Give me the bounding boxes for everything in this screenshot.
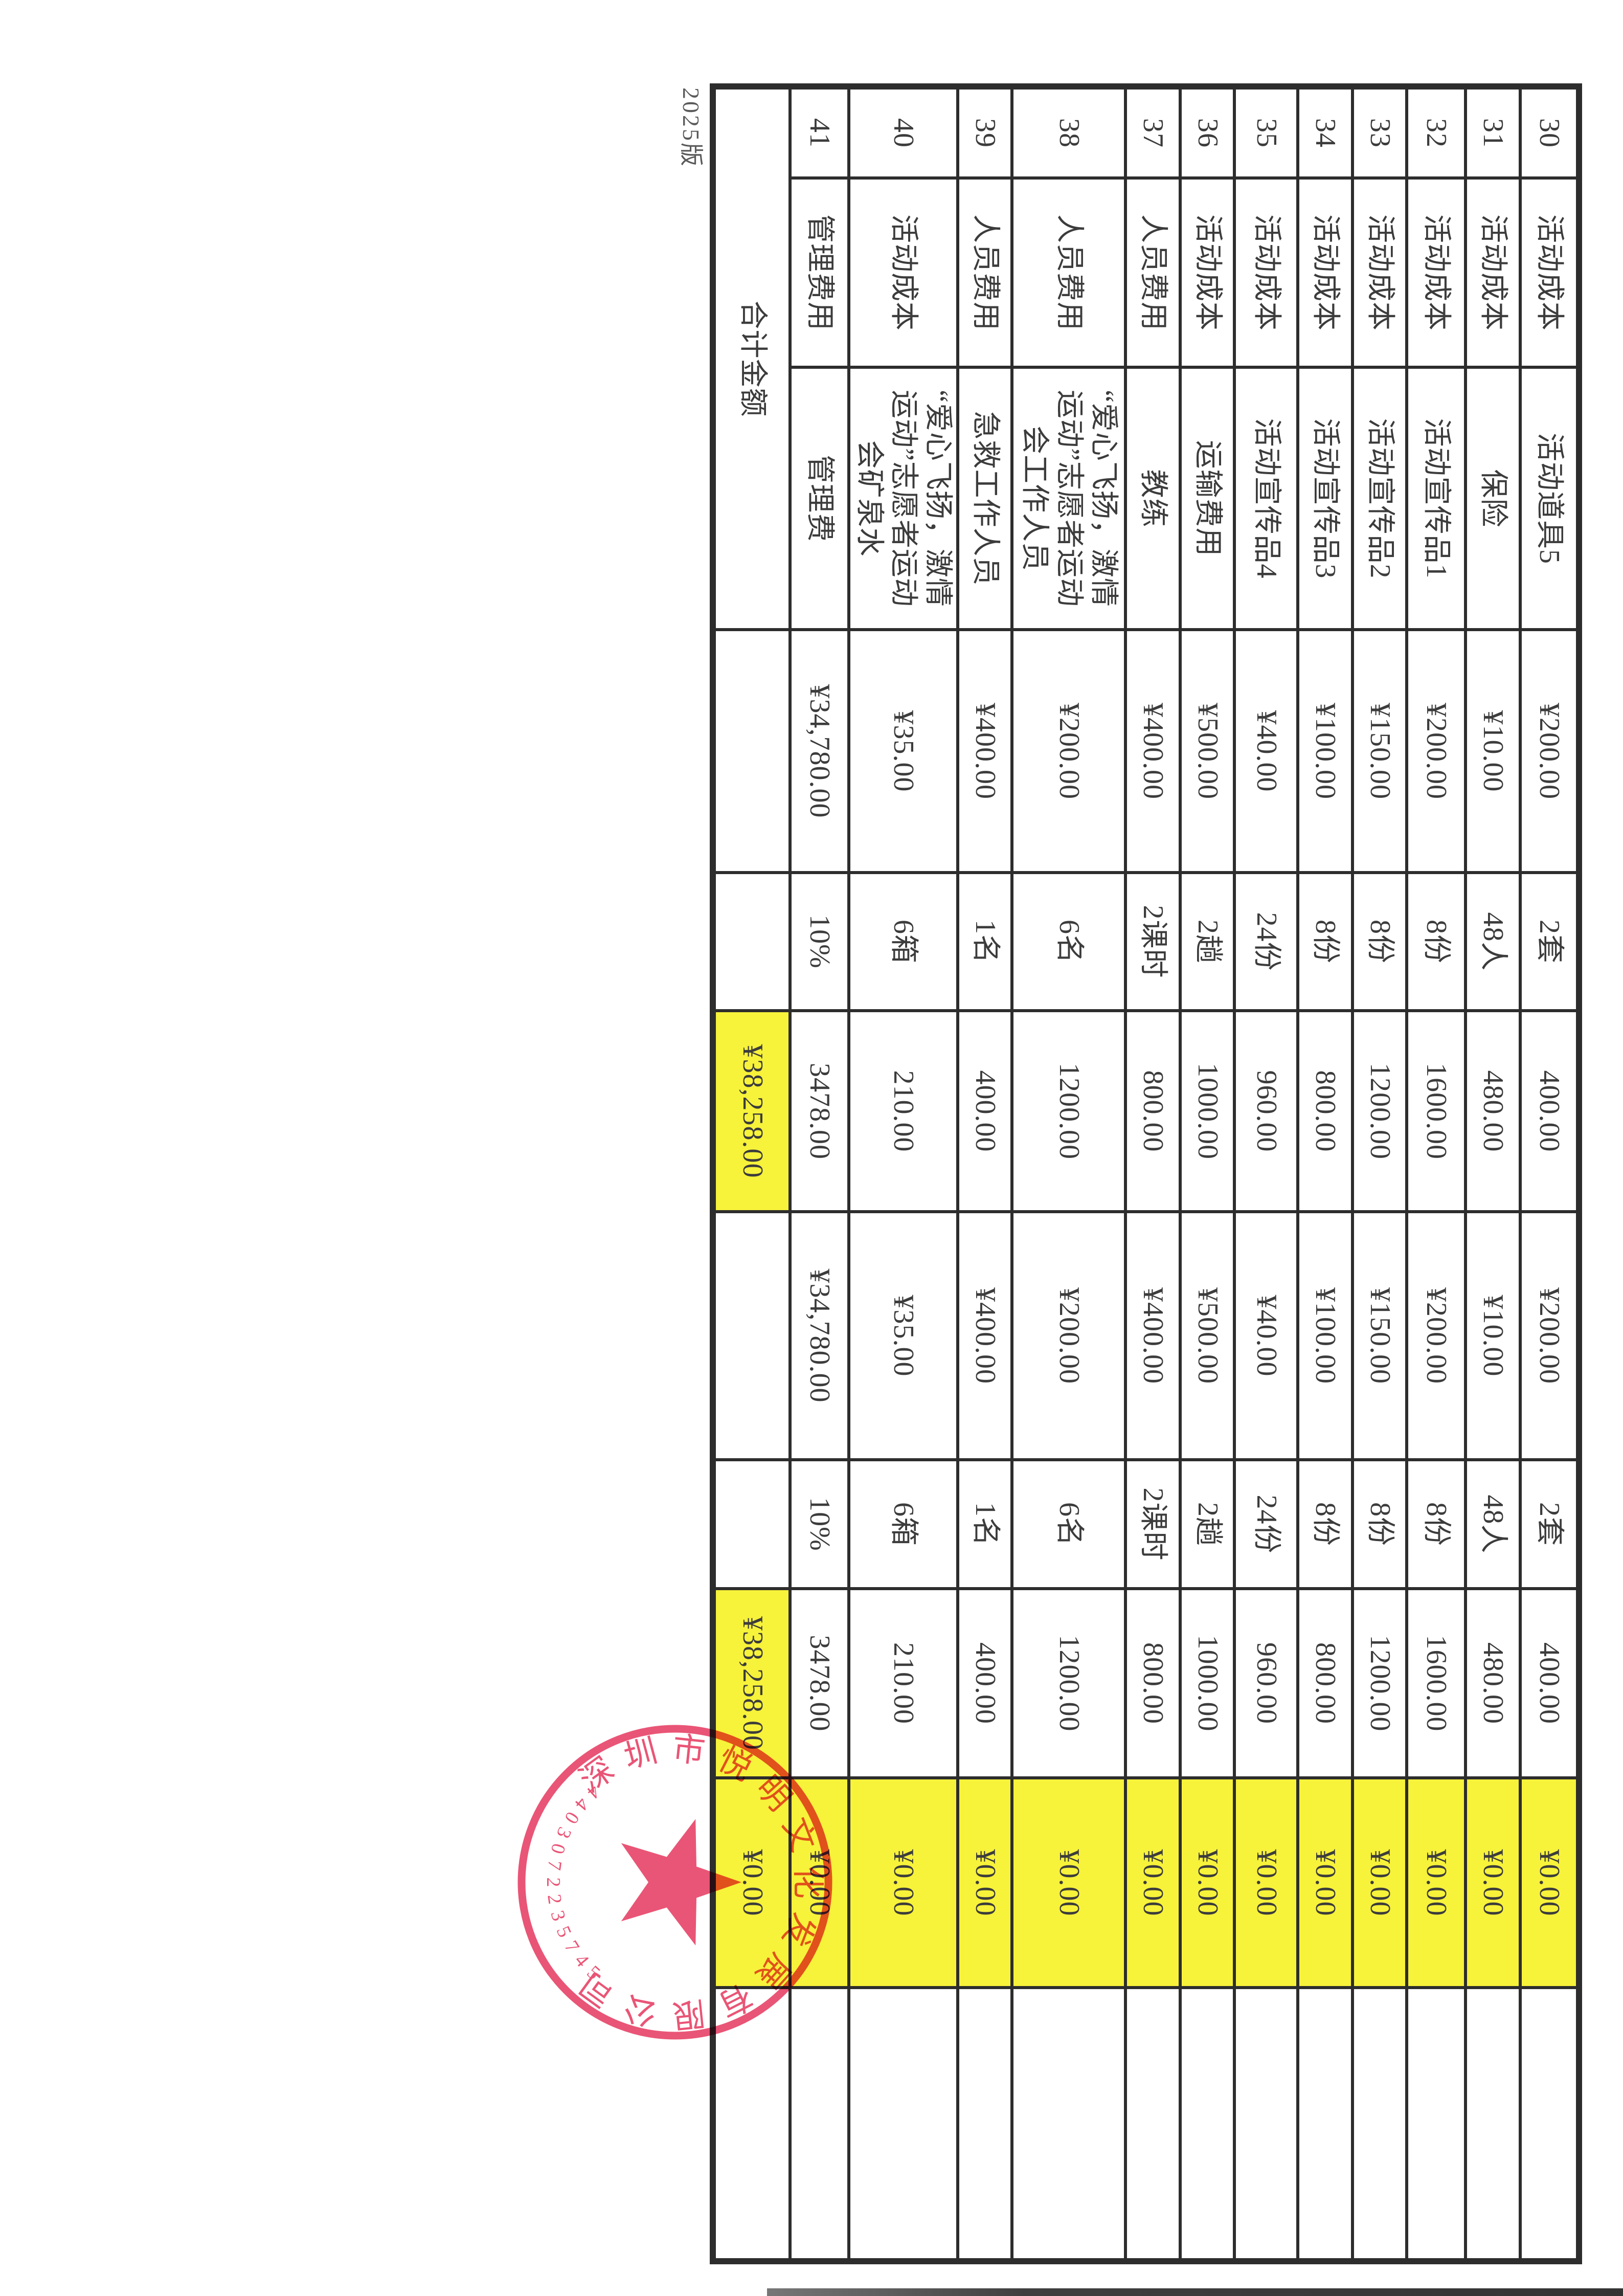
cell-budget_amount: 210.00 xyxy=(849,1011,958,1212)
cell-item: “爱心飞扬，激情运动”志愿者运动会矿泉水 xyxy=(849,367,958,630)
cell-note xyxy=(1234,1988,1298,2261)
cell-note xyxy=(1125,1988,1180,2261)
total-budget-qty-cell xyxy=(713,873,790,1011)
cell-category: 人员费用 xyxy=(1125,178,1180,367)
cell-no: 40 xyxy=(849,86,958,178)
total-budget-price-cell xyxy=(713,630,790,873)
cell-final_price: ¥150.00 xyxy=(1352,1212,1407,1460)
table-row: 40 活动成本 “爱心飞扬，激情运动”志愿者运动会矿泉水 ¥35.00 6箱 2… xyxy=(849,86,958,2261)
cell-category: 活动成本 xyxy=(1180,178,1234,367)
cell-final_price: ¥400.00 xyxy=(1125,1212,1180,1460)
cell-budget_qty: 6名 xyxy=(1012,873,1125,1011)
total-label: 合计金额 xyxy=(713,86,790,630)
cell-final_amount: 1600.00 xyxy=(1407,1589,1466,1778)
cell-budget_price: ¥200.00 xyxy=(1520,630,1579,873)
cell-budget_amount: 400.00 xyxy=(1520,1011,1579,1212)
table-row: 34 活动成本 活动宣传品3 ¥100.00 8份 800.00 ¥100.00… xyxy=(1298,86,1352,2261)
cell-no: 34 xyxy=(1298,86,1352,178)
cell-final_amount: 800.00 xyxy=(1298,1589,1352,1778)
stamp-number-digit: 3 xyxy=(552,1824,576,1841)
cell-diff: ¥0.00 xyxy=(958,1778,1012,1988)
cell-budget_qty: 8份 xyxy=(1407,873,1466,1011)
cell-final_qty: 2趟 xyxy=(1180,1460,1234,1589)
cell-budget_amount: 480.00 xyxy=(1466,1011,1520,1212)
cell-budget_amount: 1600.00 xyxy=(1407,1011,1466,1212)
cell-final_amount: 1200.00 xyxy=(1012,1589,1125,1778)
cell-final_amount: 400.00 xyxy=(958,1589,1012,1778)
cell-final_price: ¥200.00 xyxy=(1407,1212,1466,1460)
cell-diff: ¥0.00 xyxy=(1180,1778,1234,1988)
budget-table-body: 30 活动成本 活动道具5 ¥200.00 2套 400.00 ¥200.00 … xyxy=(790,86,1579,2261)
cell-final_qty: 10% xyxy=(790,1460,849,1589)
scanned-page: 30 活动成本 活动道具5 ¥200.00 2套 400.00 ¥200.00 … xyxy=(0,0,1623,2296)
cell-final_price: ¥400.00 xyxy=(958,1212,1012,1460)
cell-final_price: ¥200.00 xyxy=(1520,1212,1579,1460)
stamp-company-char: 化 xyxy=(790,1866,826,1899)
total-final-price-cell xyxy=(713,1212,790,1460)
cell-budget_price: ¥35.00 xyxy=(849,630,958,873)
cell-item: 活动宣传品1 xyxy=(1407,367,1466,630)
cell-budget_amount: 1000.00 xyxy=(1180,1011,1234,1212)
table-row: 30 活动成本 活动道具5 ¥200.00 2套 400.00 ¥200.00 … xyxy=(1520,86,1579,2261)
cell-budget_price: ¥34,780.00 xyxy=(790,630,849,873)
cell-no: 37 xyxy=(1125,86,1180,178)
cell-budget_qty: 10% xyxy=(790,873,849,1011)
cell-budget_qty: 8份 xyxy=(1352,873,1407,1011)
cell-item: “爱心飞扬，激情运动”志愿者运动会工作人员 xyxy=(1012,367,1125,630)
cell-budget_price: ¥100.00 xyxy=(1298,630,1352,873)
cell-budget_amount: 3478.00 xyxy=(790,1011,849,1212)
cell-final_amount: 210.00 xyxy=(849,1589,958,1778)
cell-category: 人员费用 xyxy=(1012,178,1125,367)
cell-diff: ¥0.00 xyxy=(1520,1778,1579,1988)
cell-final_price: ¥10.00 xyxy=(1466,1212,1520,1460)
cell-diff: ¥0.00 xyxy=(1012,1778,1125,1988)
cell-diff: ¥0.00 xyxy=(1407,1778,1466,1988)
cell-item: 教练 xyxy=(1125,367,1180,630)
cell-item: 活动宣传品2 xyxy=(1352,367,1407,630)
cell-no: 36 xyxy=(1180,86,1234,178)
stamp-number-digit: 4 xyxy=(570,1950,593,1971)
cell-budget_amount: 960.00 xyxy=(1234,1011,1298,1212)
cell-no: 41 xyxy=(790,86,849,178)
cell-final_qty: 6箱 xyxy=(849,1460,958,1589)
table-row: 39 人员费用 急救工作人员 ¥400.00 1名 400.00 ¥400.00… xyxy=(958,86,1012,2261)
stamp-number-digit: 7 xyxy=(543,1859,566,1872)
table-row: 38 人员费用 “爱心飞扬，激情运动”志愿者运动会工作人员 ¥200.00 6名… xyxy=(1012,86,1125,2261)
stamp-company-char: 限 xyxy=(671,1994,707,2034)
star-icon xyxy=(621,1819,741,1945)
table-row: 32 活动成本 活动宣传品1 ¥200.00 8份 1600.00 ¥200.0… xyxy=(1407,86,1466,2261)
cell-budget_qty: 2趟 xyxy=(1180,873,1234,1011)
cell-final_amount: 800.00 xyxy=(1125,1589,1180,1778)
cell-budget_qty: 8份 xyxy=(1298,873,1352,1011)
total-final-qty-cell xyxy=(713,1460,790,1589)
budget-sheet: 30 活动成本 活动道具5 ¥200.00 2套 400.00 ¥200.00 … xyxy=(716,83,1582,2258)
cell-budget_price: ¥200.00 xyxy=(1012,630,1125,873)
cell-category: 人员费用 xyxy=(958,178,1012,367)
cell-item: 急救工作人员 xyxy=(958,367,1012,630)
cell-budget_qty: 24份 xyxy=(1234,873,1298,1011)
cell-final_qty: 2课时 xyxy=(1125,1460,1180,1589)
cell-no: 38 xyxy=(1012,86,1125,178)
cell-category: 活动成本 xyxy=(1466,178,1520,367)
total-budget-amount: ¥38,258.00 xyxy=(713,1011,790,1212)
cell-note xyxy=(1012,1988,1125,2261)
cell-budget_qty: 6箱 xyxy=(849,873,958,1011)
cell-final_price: ¥100.00 xyxy=(1298,1212,1352,1460)
stamp-number-digit: 4 xyxy=(570,1793,593,1815)
cell-note xyxy=(1466,1988,1520,2261)
cell-item: 活动宣传品4 xyxy=(1234,367,1298,630)
cell-final_qty: 24份 xyxy=(1234,1460,1298,1589)
cell-final_amount: 1200.00 xyxy=(1352,1589,1407,1778)
cell-note xyxy=(1352,1988,1407,2261)
stamp-company-char: 圳 xyxy=(620,1732,661,1776)
cell-diff: ¥0.00 xyxy=(1234,1778,1298,1988)
cell-diff: ¥0.00 xyxy=(1125,1778,1180,1988)
cell-note xyxy=(1180,1988,1234,2261)
cell-budget_price: ¥500.00 xyxy=(1180,630,1234,873)
cell-final_qty: 1名 xyxy=(958,1460,1012,1589)
stamp-number-digit: 0 xyxy=(560,1808,583,1827)
cell-category: 活动成本 xyxy=(1352,178,1407,367)
cell-budget_amount: 1200.00 xyxy=(1012,1011,1125,1212)
cell-item: 管理费 xyxy=(790,367,849,630)
cell-final_qty: 8份 xyxy=(1407,1460,1466,1589)
cell-budget_qty: 2套 xyxy=(1520,873,1579,1011)
cell-final_amount: 1000.00 xyxy=(1180,1589,1234,1778)
cell-item: 活动道具5 xyxy=(1520,367,1579,630)
cell-budget_price: ¥150.00 xyxy=(1352,630,1407,873)
cell-item: 运输费用 xyxy=(1180,367,1234,630)
cell-no: 31 xyxy=(1466,86,1520,178)
cell-note xyxy=(1407,1988,1466,2261)
cell-final_qty: 6名 xyxy=(1012,1460,1125,1589)
cell-final_price: ¥34,780.00 xyxy=(790,1212,849,1460)
cell-final_price: ¥35.00 xyxy=(849,1212,958,1460)
cell-budget_qty: 48人 xyxy=(1466,873,1520,1011)
table-row: 37 人员费用 教练 ¥400.00 2课时 800.00 ¥400.00 2课… xyxy=(1125,86,1180,2261)
cell-final_qty: 2套 xyxy=(1520,1460,1579,1589)
cell-budget_price: ¥400.00 xyxy=(958,630,1012,873)
stamp-number-digit: 3 xyxy=(546,1908,570,1924)
cell-budget_price: ¥200.00 xyxy=(1407,630,1466,873)
cell-item: 活动宣传品3 xyxy=(1298,367,1352,630)
cell-budget_amount: 800.00 xyxy=(1125,1011,1180,1212)
table-row: 36 活动成本 运输费用 ¥500.00 2趟 1000.00 ¥500.00 … xyxy=(1180,86,1234,2261)
cell-diff: ¥0.00 xyxy=(1298,1778,1352,1988)
table-row: 31 活动成本 保险 ¥10.00 48人 480.00 ¥10.00 48人 … xyxy=(1466,86,1520,2261)
cell-diff: ¥0.00 xyxy=(1352,1778,1407,1988)
cell-budget_price: ¥10.00 xyxy=(1466,630,1520,873)
cell-category: 活动成本 xyxy=(849,178,958,367)
cell-note xyxy=(849,1988,958,2261)
cell-budget_qty: 2课时 xyxy=(1125,873,1180,1011)
cell-no: 32 xyxy=(1407,86,1466,178)
stamp-number-digit: 2 xyxy=(543,1878,564,1887)
cell-no: 30 xyxy=(1520,86,1579,178)
cell-budget_amount: 1200.00 xyxy=(1352,1011,1407,1212)
cell-final_qty: 48人 xyxy=(1466,1460,1520,1589)
company-stamp: 深圳市悦明文化发展有限公司4403072235745 xyxy=(506,1713,844,2051)
stamp-number-digit: 7 xyxy=(560,1937,583,1956)
cell-final_price: ¥500.00 xyxy=(1180,1212,1234,1460)
cell-budget_price: ¥40.00 xyxy=(1234,630,1298,873)
cell-note xyxy=(958,1988,1012,2261)
table-row: 33 活动成本 活动宣传品2 ¥150.00 8份 1200.00 ¥150.0… xyxy=(1352,86,1407,2261)
version-label: 2025版 xyxy=(676,87,710,168)
scan-edge-shadow xyxy=(767,2288,1623,2296)
cell-category: 活动成本 xyxy=(1407,178,1466,367)
cell-category: 活动成本 xyxy=(1298,178,1352,367)
cell-category: 管理费用 xyxy=(790,178,849,367)
cell-final_price: ¥40.00 xyxy=(1234,1212,1298,1460)
cell-final_qty: 8份 xyxy=(1352,1460,1407,1589)
table-row: 35 活动成本 活动宣传品4 ¥40.00 24份 960.00 ¥40.00 … xyxy=(1234,86,1298,2261)
cell-no: 39 xyxy=(958,86,1012,178)
cell-budget_amount: 800.00 xyxy=(1298,1011,1352,1212)
cell-final_qty: 8份 xyxy=(1298,1460,1352,1589)
cell-no: 35 xyxy=(1234,86,1298,178)
cell-no: 33 xyxy=(1352,86,1407,178)
stamp-number-digit: 0 xyxy=(546,1841,570,1856)
cell-diff: ¥0.00 xyxy=(1466,1778,1520,1988)
cell-diff: ¥0.00 xyxy=(849,1778,958,1988)
stamp-number-digit: 5 xyxy=(552,1923,576,1941)
cell-note xyxy=(1520,1988,1579,2261)
cell-note xyxy=(1298,1988,1352,2261)
cell-category: 活动成本 xyxy=(1234,178,1298,367)
cell-budget_amount: 400.00 xyxy=(958,1011,1012,1212)
cell-budget_price: ¥400.00 xyxy=(1125,630,1180,873)
cell-category: 活动成本 xyxy=(1520,178,1579,367)
cell-final_amount: 960.00 xyxy=(1234,1589,1298,1778)
cell-final_amount: 400.00 xyxy=(1520,1589,1579,1778)
stamp-number-digit: 2 xyxy=(543,1893,566,1906)
cell-item: 保险 xyxy=(1466,367,1520,630)
stamp-company-char: 公 xyxy=(620,1989,661,2032)
stamp-company-char: 市 xyxy=(671,1730,707,1770)
cell-budget_qty: 1名 xyxy=(958,873,1012,1011)
cell-final_amount: 480.00 xyxy=(1466,1589,1520,1778)
cell-final_price: ¥200.00 xyxy=(1012,1212,1125,1460)
